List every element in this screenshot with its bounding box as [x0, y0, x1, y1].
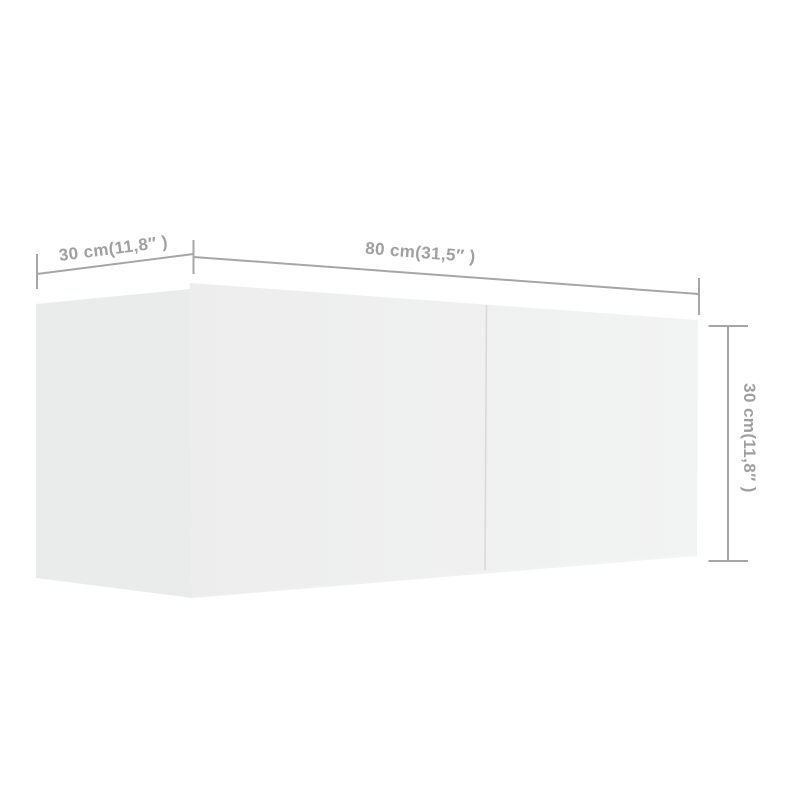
cabinet-front-panel	[190, 283, 698, 598]
product-dimension-diagram: 30 cm(11,8″ ) 80 cm(31,5″ ) 30 cm(11,8″ …	[0, 0, 800, 800]
depth-dimension-annotation: 30 cm(11,8″ )	[37, 232, 194, 289]
cabinet-side-panel	[36, 289, 192, 598]
height-dimension-label: 30 cm(11,8″ )	[740, 383, 759, 493]
height-dimension-annotation: 30 cm(11,8″ )	[709, 326, 760, 561]
width-dimension-label: 80 cm(31,5″ )	[365, 239, 477, 267]
product-diagram-svg: 30 cm(11,8″ ) 80 cm(31,5″ ) 30 cm(11,8″ …	[0, 0, 800, 800]
cabinet	[14, 283, 698, 655]
